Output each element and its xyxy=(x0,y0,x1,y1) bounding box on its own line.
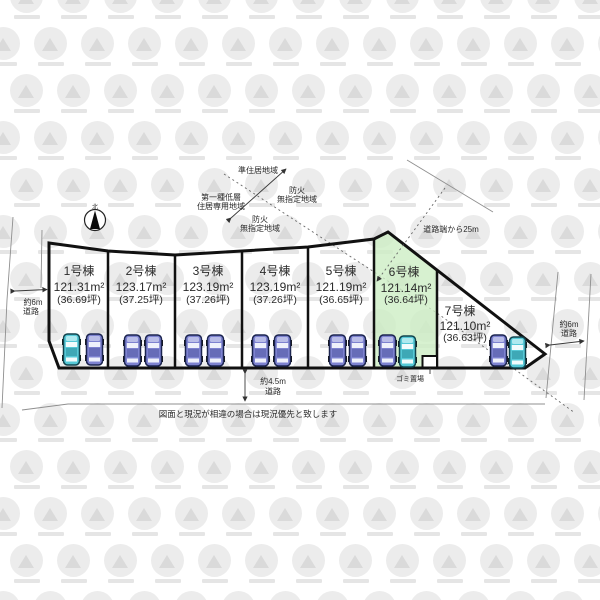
right-road-dimension: 約6m 道路 xyxy=(550,319,584,345)
zoning-fire-right-label-2: 無指定地域 xyxy=(277,194,317,204)
zoning-semi-residential-label: 準住居地域 xyxy=(238,165,278,175)
car-icon xyxy=(489,335,508,366)
zoning-fire-left-label-2: 無指定地域 xyxy=(240,223,280,233)
lot7-tsubo: (36.63坪) xyxy=(443,331,487,344)
car-icon xyxy=(508,337,527,368)
left-road-dimension: 約6m 道路 xyxy=(15,290,47,317)
lot2-tsubo: (37.25坪) xyxy=(119,293,163,306)
zoning-first-kind-label-2: 住居専用地域 xyxy=(197,201,245,211)
car-icon xyxy=(251,335,270,366)
lot5-area: 121.19m² xyxy=(316,280,367,294)
car-icon xyxy=(378,335,397,366)
zoning-fire-right-label-1: 防火 xyxy=(289,185,305,195)
site-plan-image: ゴミ置場 道路端から25m 準住居地域 防火 無指定地域 第一種低層 住居専用地… xyxy=(0,0,600,600)
car-icon xyxy=(206,335,225,366)
car-icon xyxy=(398,336,417,367)
car-icon xyxy=(184,335,203,366)
zoning-fire-left-label-1: 防火 xyxy=(252,214,268,224)
lot6-name: 6号棟 xyxy=(389,264,420,279)
lot6-area: 121.14m² xyxy=(381,281,432,295)
lot3-name: 3号棟 xyxy=(193,263,224,278)
right-road-type-label: 道路 xyxy=(561,328,577,338)
car-icon xyxy=(328,335,347,366)
lot1-tsubo: (36.69坪) xyxy=(57,293,101,306)
bottom-road-dimension: 約4.5m 道路 xyxy=(245,374,286,402)
garbage-area-box xyxy=(423,356,438,368)
car-icon xyxy=(273,335,292,366)
left-road-outer-edge xyxy=(2,217,13,408)
road-distance-label: 道路端から25m xyxy=(423,224,479,234)
car-icon xyxy=(85,334,104,365)
car-icon xyxy=(348,335,367,366)
car-icon xyxy=(123,335,142,366)
lot1-area: 121.31m² xyxy=(54,280,105,294)
lot5-name: 5号棟 xyxy=(326,263,357,278)
right-road-outer-edge xyxy=(584,274,591,400)
left-road-width-label: 約6m xyxy=(23,297,42,307)
compass-north-icon: 北 xyxy=(85,203,106,231)
zoning-first-kind-label-1: 第一種低層 xyxy=(201,192,241,202)
bottom-road-width-label: 約4.5m xyxy=(260,376,286,386)
bottom-road-type-label: 道路 xyxy=(265,386,281,396)
lot7-name: 7号棟 xyxy=(445,303,476,318)
lot5-tsubo: (36.65坪) xyxy=(319,293,363,306)
lot4-area: 123.19m² xyxy=(250,280,301,294)
right-road-width-label: 約6m xyxy=(559,319,578,329)
lot3-tsubo: (37.26坪) xyxy=(186,293,230,306)
left-road-inner-edge xyxy=(41,230,42,288)
garbage-area-label: ゴミ置場 xyxy=(396,374,424,383)
disclaimer-text: 図面と現況が相違の場合は現況優先と致します xyxy=(159,409,338,419)
lot3-area: 123.19m² xyxy=(183,280,234,294)
lot4-name: 4号棟 xyxy=(260,263,291,278)
site-plan-drawing: ゴミ置場 道路端から25m 準住居地域 防火 無指定地域 第一種低層 住居専用地… xyxy=(0,0,600,600)
left-road-type-label: 道路 xyxy=(23,306,39,316)
lot2-area: 123.17m² xyxy=(116,280,167,294)
lot4-tsubo: (37.26坪) xyxy=(253,293,297,306)
car-icon xyxy=(144,335,163,366)
upper-right-road-edge xyxy=(407,160,493,212)
lot7-area: 121.10m² xyxy=(440,319,491,333)
right-road-inner-edge xyxy=(546,272,558,398)
lot2-name: 2号棟 xyxy=(126,263,157,278)
car-icon xyxy=(62,334,81,365)
lot1-name: 1号棟 xyxy=(64,263,95,278)
compass-north-label: 北 xyxy=(92,203,98,211)
lot6-tsubo: (36.64坪) xyxy=(384,293,428,306)
